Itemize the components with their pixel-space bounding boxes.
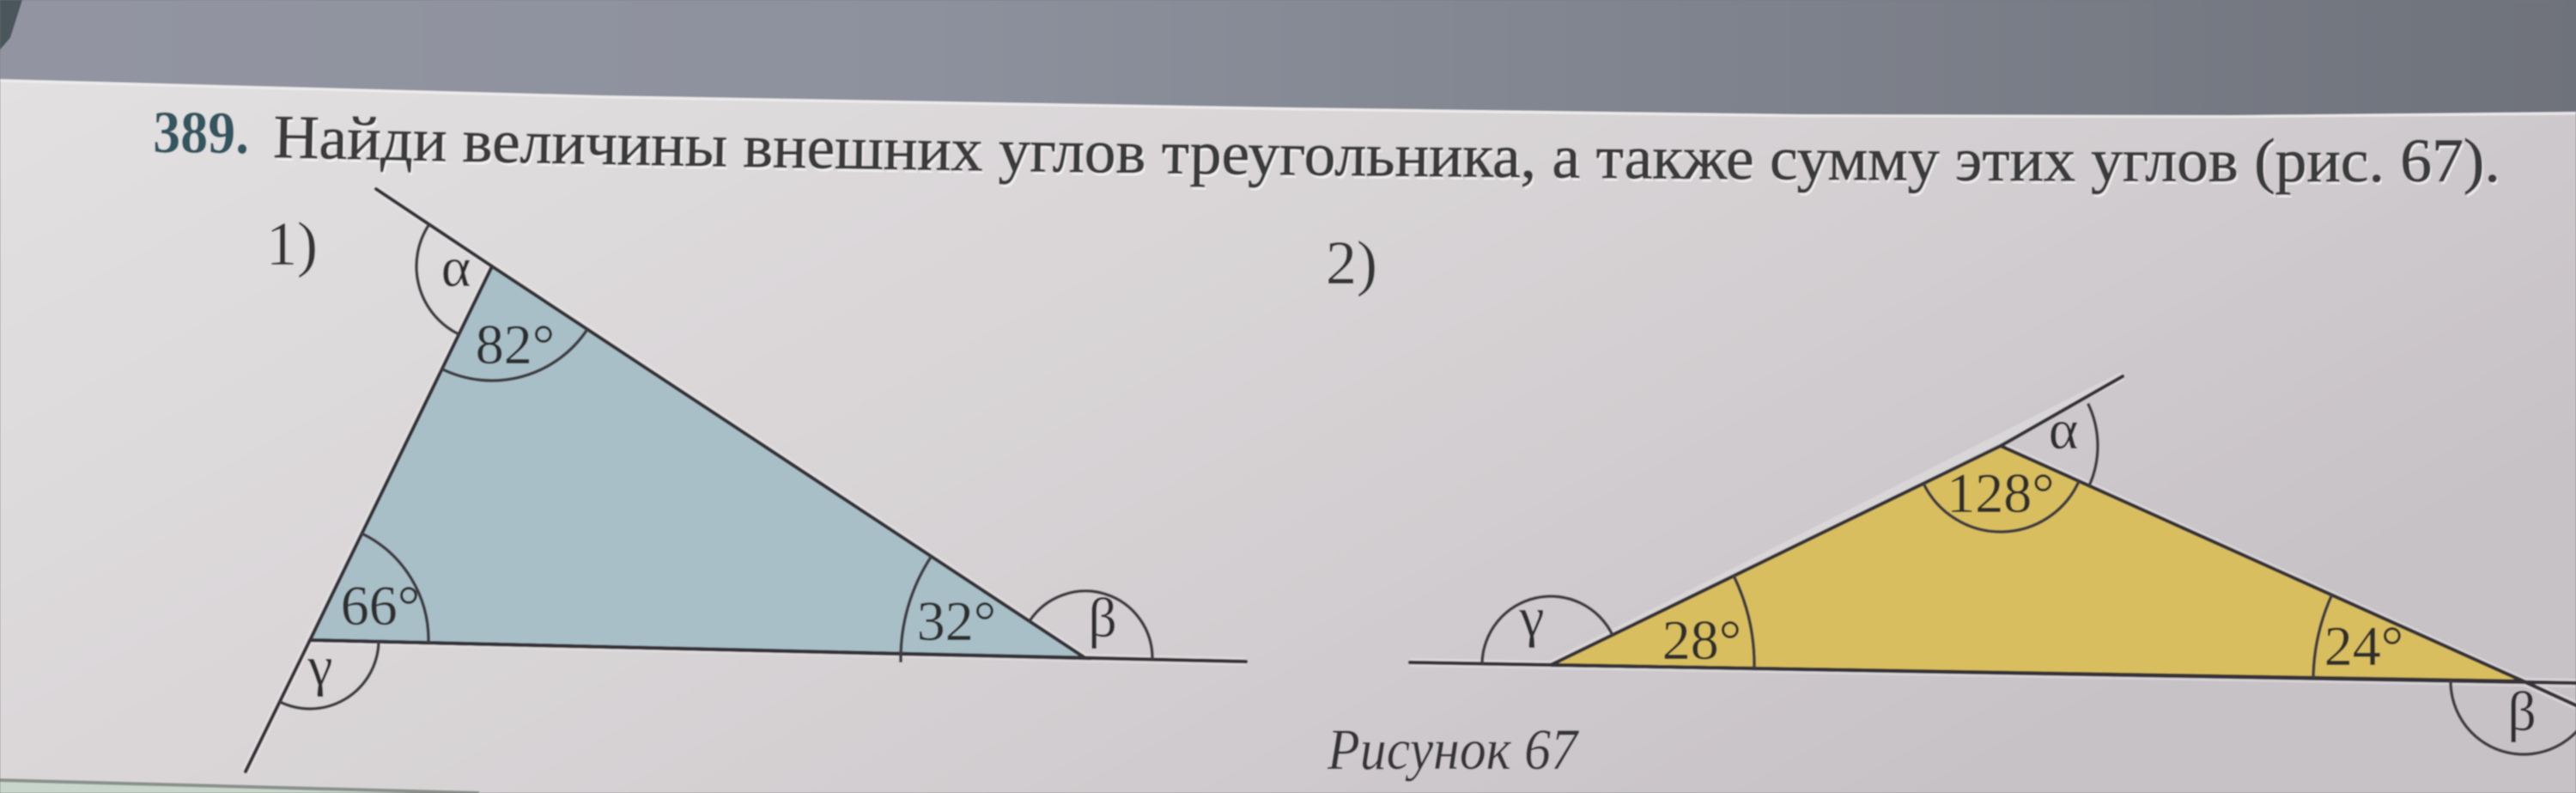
svg-text:82°: 82°	[476, 314, 555, 376]
svg-text:128°: 128°	[1947, 462, 2054, 525]
svg-text:β: β	[1088, 587, 1117, 650]
svg-text:γ: γ	[1518, 586, 1544, 649]
svg-text:β: β	[2507, 680, 2537, 743]
svg-text:24°: 24°	[2324, 615, 2403, 678]
svg-text:28°: 28°	[1662, 609, 1741, 672]
svg-text:γ: γ	[307, 635, 332, 698]
svg-text:32°: 32°	[917, 590, 996, 653]
svg-text:66°: 66°	[341, 575, 420, 637]
svg-text:1): 1)	[266, 210, 318, 278]
svg-text:α: α	[441, 236, 471, 299]
svg-text:389.: 389.	[153, 100, 250, 167]
svg-text:2): 2)	[1326, 229, 1377, 297]
svg-text:Рисунок 67: Рисунок 67	[1327, 717, 1580, 782]
svg-text:α: α	[2049, 399, 2079, 461]
